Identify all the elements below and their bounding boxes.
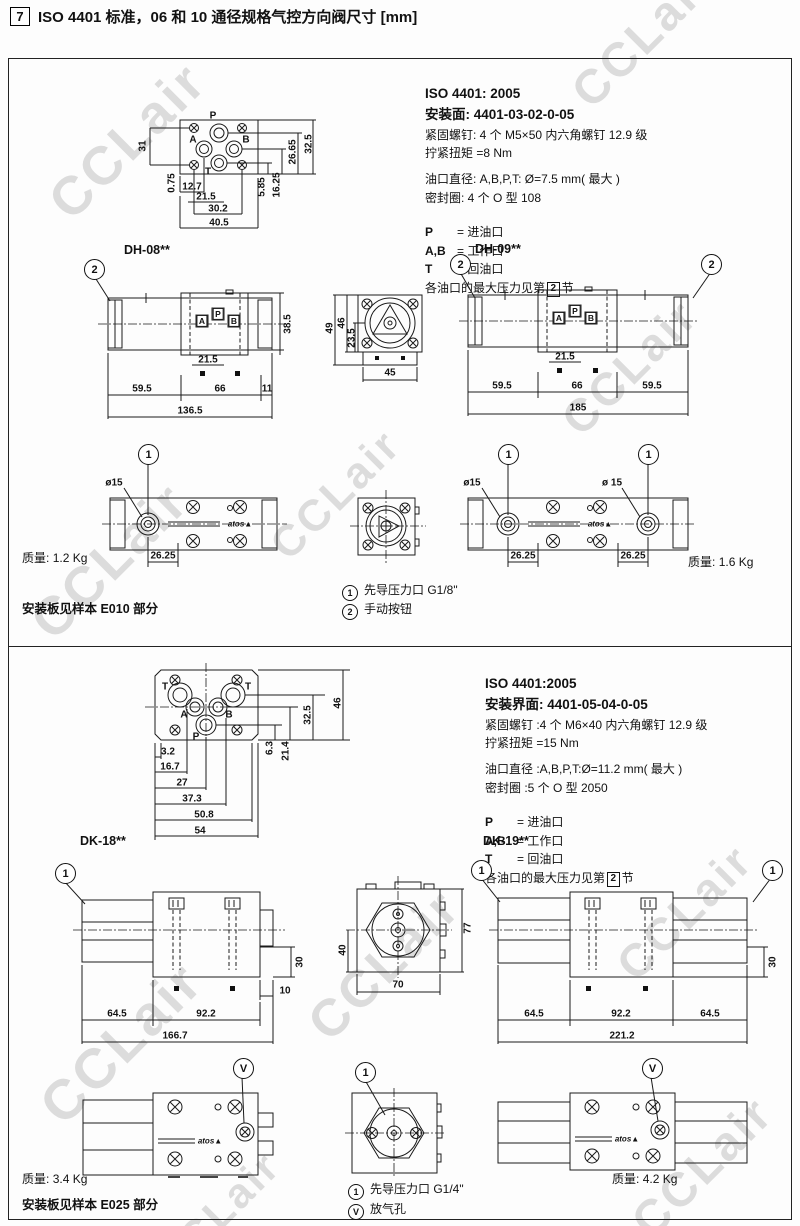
dim-label: ø 15 — [602, 478, 622, 489]
dim-label: 10 — [279, 986, 290, 997]
spec-standard: ISO 4401:2005 — [485, 674, 785, 695]
port-label: P — [570, 305, 581, 317]
dh08-side-view-drawing: DH-08** 2 A P B 38.5 21.5 59.5 66 1 — [80, 243, 345, 433]
datasheet-page: CCLair CCLair CCLair CCLair CCLair CCLai… — [0, 0, 800, 1226]
dim-label: 45 — [384, 368, 395, 379]
dim-label: ø15 — [105, 478, 122, 489]
page-title: ISO 4401 标准，06 和 10 通径规格气控方向阀尺寸 [mm] — [38, 6, 417, 27]
dim-label: 30.2 — [208, 204, 227, 215]
dim-label: 50.8 — [194, 810, 213, 821]
spec-torque: 拧紧扭矩 =15 Nm — [485, 734, 785, 753]
dim-label: 59.5 — [642, 381, 661, 392]
circled-1-icon: 1 — [348, 1184, 364, 1200]
section-number-badge: 7 — [10, 7, 30, 26]
dim-label: 32.5 — [304, 134, 315, 153]
dim-label: 26.25 — [510, 551, 535, 562]
dim-label: 26.25 — [620, 551, 645, 562]
circled-2-icon: 2 — [342, 604, 358, 620]
spec-port-diameter: 油口直径 :A,B,P,T:Ø=11.2 mm( 最大 ) — [485, 760, 785, 779]
dim-label: 46 — [337, 317, 348, 328]
mass-text: 质量: 4.2 Kg — [612, 1170, 677, 1187]
port-label: B — [242, 135, 249, 146]
dim-label: 3.2 — [161, 747, 175, 758]
section-divider — [8, 646, 791, 647]
dim-label: 40.5 — [209, 218, 228, 229]
dim-label: 21.5 — [196, 192, 215, 203]
port-label: A — [196, 315, 207, 327]
port-label: P — [210, 111, 217, 122]
dim-label: 30 — [768, 956, 779, 967]
spec-seal: 密封圈 :5 个 O 型 2050 — [485, 779, 785, 798]
dh-end-view-lineart — [325, 283, 447, 403]
dk19-bottom-lineart — [490, 1055, 795, 1185]
dk-mounting-face-lineart — [140, 655, 485, 855]
dim-label: 64.5 — [107, 1009, 126, 1020]
dim-label: 21.5 — [198, 355, 217, 366]
dh09-side-view-drawing: DH-09** 2 2 A P B 21.5 59.5 66 59.5 185 — [445, 240, 757, 435]
dh-end-bottom-lineart — [348, 483, 443, 575]
port-label: A — [189, 135, 196, 146]
dim-label: 59.5 — [492, 381, 511, 392]
dim-label: 136.5 — [177, 406, 202, 417]
dim-label: 16.7 — [160, 762, 179, 773]
callout-1-icon: 1 — [498, 444, 519, 465]
port-label: P — [213, 308, 224, 320]
dh08-bottom-view-drawing: 1 ø15 atos▲ 26.25 — [80, 443, 345, 583]
spec-port-diameter: 油口直径: A,B,P,T: Ø=7.5 mm( 最大 ) — [425, 170, 785, 189]
dim-label: 26.65 — [288, 139, 299, 164]
dim-label: 30 — [295, 956, 306, 967]
model-label: DH-08** — [124, 243, 170, 257]
dim-label: 31 — [138, 140, 149, 151]
atos-logo: atos▲ — [588, 520, 612, 529]
callout-1-icon: 1 — [762, 860, 783, 881]
dk-mounting-face-drawing: T T A B P 3.2 16.7 27 37.3 50.8 54 6.3 2… — [140, 655, 485, 855]
port-label: T — [205, 167, 211, 178]
callout-1-icon: 1 — [471, 860, 492, 881]
mass-text: 质量: 3.4 Kg — [22, 1170, 87, 1187]
dim-label: 221.2 — [609, 1031, 634, 1042]
dim-label: 6.3 — [265, 741, 276, 755]
mounting-board-note: 安装板见样本 E025 部分 — [22, 1194, 158, 1213]
dim-label: 166.7 — [162, 1031, 187, 1042]
footnote-vent-hole: V放气孔 — [348, 1200, 406, 1220]
callout-1-icon: 1 — [355, 1062, 376, 1083]
dk19-side-view-drawing: DK-19** 1 1 30 64.5 92.2 64.5 221.2 — [465, 830, 800, 1075]
dim-label: 16.25 — [272, 172, 283, 197]
callout-2-icon: 2 — [450, 254, 471, 275]
dim-label: 185 — [570, 403, 587, 414]
dim-label: 92.2 — [196, 1009, 215, 1020]
spec-screws: 紧固螺钉: 4 个 M5×50 内六角螺钉 12.9 级 — [425, 126, 785, 145]
dim-label: 21.5 — [555, 352, 574, 363]
dh-end-view-drawing: 49 46 23.5 45 — [325, 283, 447, 403]
port-label: P — [193, 732, 200, 743]
dim-label: 64.5 — [700, 1009, 719, 1020]
spec-standard: ISO 4401: 2005 — [425, 84, 785, 105]
dim-label: 0.75 — [167, 173, 178, 192]
dim-label: 11 — [262, 384, 273, 395]
dim-label: 59.5 — [132, 384, 151, 395]
dim-label: 37.3 — [182, 794, 201, 805]
circled-1-icon: 1 — [342, 585, 358, 601]
dk18-side-lineart — [45, 830, 347, 1075]
dim-label: 5.85 — [257, 177, 268, 196]
dim-label: 92.2 — [611, 1009, 630, 1020]
dim-label: ø15 — [463, 478, 480, 489]
dk-end-bottom-view-drawing: 1 — [345, 1060, 480, 1182]
dim-label: 66 — [214, 384, 225, 395]
spec-surface: 安装界面: 4401-05-04-0-05 — [485, 695, 785, 716]
callout-vent-icon: V — [642, 1058, 663, 1079]
dh-mounting-face-lineart — [100, 92, 392, 244]
dim-label: 64.5 — [524, 1009, 543, 1020]
callout-2-icon: 2 — [84, 259, 105, 280]
port-label: T — [162, 682, 168, 693]
dk18-bottom-view-drawing: V atos▲ — [70, 1055, 345, 1195]
callout-1-icon: 1 — [138, 444, 159, 465]
dh-mounting-face-drawing: P A B T 31 0.75 12.7 21.5 30.2 40.5 5.85… — [100, 92, 392, 244]
mounting-board-note: 安装板见样本 E010 部分 — [22, 598, 158, 617]
spec-seal: 密封圈: 4 个 O 型 108 — [425, 189, 785, 208]
dk18-side-view-drawing: DK-18** 1 30 10 64.5 92.2 166.7 — [45, 830, 347, 1075]
mass-text: 质量: 1.2 Kg — [22, 549, 87, 566]
atos-logo: atos▲ — [228, 520, 252, 529]
circled-v-icon: V — [348, 1204, 364, 1220]
mass-text: 质量: 1.6 Kg — [688, 553, 753, 570]
port-label: B — [225, 710, 232, 721]
dim-label: 32.5 — [303, 705, 314, 724]
dim-label: 49 — [325, 322, 336, 333]
dk18-bottom-lineart — [70, 1055, 345, 1195]
port-label: T — [245, 682, 251, 693]
dim-label: 46 — [333, 697, 344, 708]
footnote-pilot-port: 1先导压力口 G1/4" — [348, 1180, 464, 1200]
dh08-bottom-lineart — [80, 443, 345, 583]
callout-vent-icon: V — [233, 1058, 254, 1079]
dk19-bottom-view-drawing: V atos▲ — [490, 1055, 795, 1185]
port-label: A — [553, 312, 564, 324]
dh08-side-lineart — [80, 243, 345, 433]
spec-surface: 安装面: 4401-03-02-0-05 — [425, 105, 785, 126]
dim-label: 40 — [338, 944, 349, 955]
callout-1-icon: 1 — [55, 863, 76, 884]
atos-logo: atos▲ — [615, 1135, 639, 1144]
spec-torque: 拧紧扭矩 =8 Nm — [425, 144, 785, 163]
dim-label: 26.25 — [150, 551, 175, 562]
dim-label: 27 — [176, 778, 187, 789]
dim-label: 21.4 — [281, 741, 292, 760]
dh-end-bottom-view-drawing — [348, 483, 443, 575]
footnote-manual-button: 2手动按钮 — [342, 600, 412, 620]
port-label: B — [585, 312, 596, 324]
model-label: DK-19** — [483, 834, 529, 848]
atos-logo: atos▲ — [198, 1137, 222, 1146]
dim-label: 66 — [571, 381, 582, 392]
dim-label: 70 — [392, 980, 403, 991]
footnote-pilot-port: 1先导压力口 G1/8" — [342, 581, 458, 601]
spec-screws: 紧固螺钉 :4 个 M6×40 内六角螺钉 12.9 级 — [485, 716, 785, 735]
dim-label: 38.5 — [283, 314, 294, 333]
port-label: A — [180, 710, 187, 721]
callout-1-icon: 1 — [638, 444, 659, 465]
model-label: DH-09** — [475, 242, 521, 256]
callout-2-icon: 2 — [701, 254, 722, 275]
page-header: 7 ISO 4401 标准，06 和 10 通径规格气控方向阀尺寸 [mm] — [10, 6, 417, 27]
port-label: B — [228, 315, 239, 327]
model-label: DK-18** — [80, 834, 126, 848]
dim-label: 23.5 — [347, 328, 358, 347]
